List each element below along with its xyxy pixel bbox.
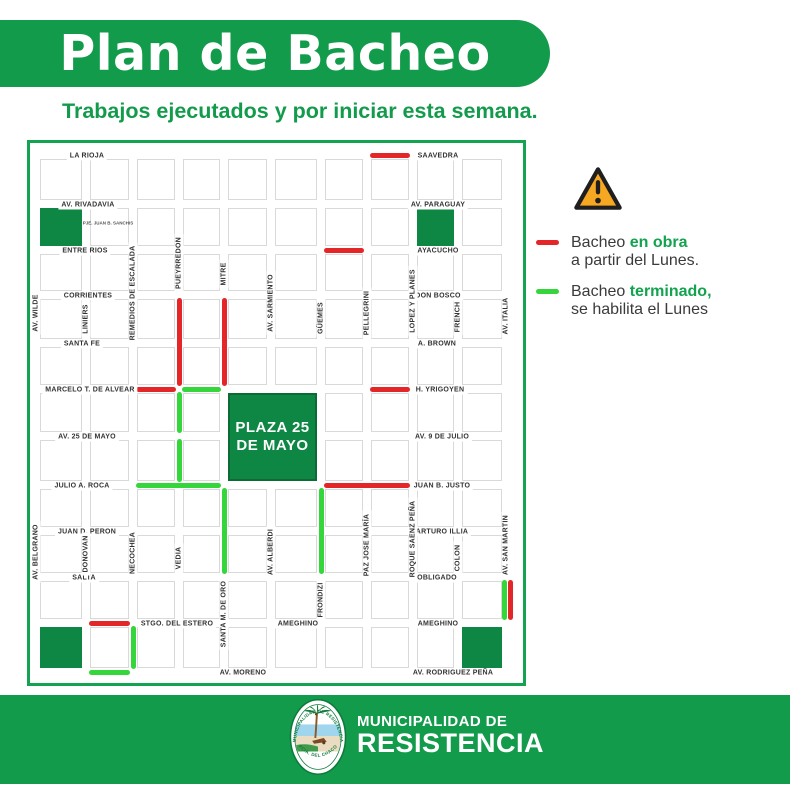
city-block — [462, 159, 502, 200]
bacheo-segment-green — [177, 439, 182, 482]
bacheo-segment-green — [131, 626, 136, 669]
city-block — [325, 347, 363, 385]
street-label-h: AMEGHINO — [275, 619, 322, 628]
street-label-h: AV. MORENO — [217, 668, 269, 677]
legend-line2: se habilita el Lunes — [571, 301, 708, 318]
city-block — [371, 535, 409, 573]
city-block — [228, 299, 267, 339]
city-block — [40, 393, 82, 432]
street-label-h: SAAVEDRA — [415, 151, 462, 160]
city-block — [40, 347, 82, 385]
city-block — [462, 581, 502, 619]
legend-item-terminado: Bacheo terminado, se habilita el Lunes — [536, 283, 712, 318]
infographic-page: Plan de Bacheo Trabajos ejecutados y por… — [0, 0, 790, 790]
city-block — [325, 627, 363, 668]
bacheo-segment-green — [177, 392, 182, 433]
street-label-v: NECOCHEA — [129, 529, 138, 577]
city-block — [462, 254, 502, 291]
city-block — [417, 535, 454, 573]
city-block — [137, 208, 175, 246]
city-block — [462, 393, 502, 432]
street-label-h: AMEGHINO — [415, 619, 462, 628]
street-label-h: AV. RIVADAVIA — [58, 200, 117, 209]
city-block — [40, 581, 82, 619]
street-label-v: SANTA M. DE ORO — [220, 578, 229, 650]
city-block — [462, 440, 502, 481]
city-block — [371, 208, 409, 246]
city-block — [40, 254, 82, 291]
city-block — [183, 489, 220, 527]
street-label-h: H. YRIGOYEN — [413, 385, 468, 394]
street-label-v: GÜEMES — [317, 299, 326, 337]
street-label-h: ENTRE RIOS — [59, 246, 110, 255]
city-block — [417, 393, 454, 432]
city-block — [228, 535, 267, 573]
street-label-h: STGO. DEL ESTERO — [138, 619, 216, 628]
legend-prefix: Bacheo — [571, 283, 630, 300]
legend-highlight: terminado, — [630, 283, 712, 300]
plaza-label: PLAZA 25 — [235, 419, 309, 437]
city-block — [228, 489, 267, 527]
bacheo-segment-red — [508, 580, 513, 620]
legend-text-en-obra: Bacheo en obra a partir del Lunes. — [571, 234, 699, 269]
city-block — [275, 489, 317, 527]
city-block — [137, 627, 175, 668]
bacheo-segment-green — [319, 488, 324, 574]
bacheo-segment-red — [222, 298, 227, 386]
city-block — [371, 440, 409, 481]
city-block — [90, 627, 129, 668]
city-block — [228, 254, 267, 291]
bacheo-segment-red — [89, 621, 130, 626]
city-block — [462, 535, 502, 573]
city-block — [90, 159, 129, 200]
city-block — [90, 581, 129, 619]
city-block — [275, 581, 317, 619]
warning-triangle-icon — [573, 166, 623, 211]
city-block — [137, 254, 175, 291]
street-label-v: AV. SAN MARTIN — [502, 512, 511, 578]
city-block — [40, 440, 82, 481]
city-block — [90, 254, 129, 291]
plaza-label: DE MAYO — [236, 437, 308, 455]
city-block — [228, 347, 267, 385]
legend-line2: a partir del Lunes. — [571, 252, 699, 269]
map-layer: PLAZA 25DE MAYOLA RIOJASAAVEDRAAV. RIVAD… — [30, 143, 517, 677]
city-block — [417, 581, 454, 619]
street-label-v: REMEDIOS DE ESCALADA — [129, 243, 138, 344]
bacheo-segment-green — [182, 387, 221, 392]
city-block — [325, 581, 363, 619]
city-block — [183, 440, 220, 481]
city-block — [137, 489, 175, 527]
bacheo-segment-red — [177, 298, 182, 386]
street-label-v: LINIERS — [82, 301, 91, 336]
street-label-v: MITRE — [220, 259, 229, 288]
city-block — [417, 299, 454, 339]
city-block — [462, 347, 502, 385]
city-block — [275, 627, 317, 668]
street-label-h: LA RIOJA — [67, 151, 107, 160]
city-block — [371, 581, 409, 619]
street-label-h: JUAN B. JUSTO — [411, 481, 473, 490]
street-label-v: AV. ITALIA — [502, 295, 511, 338]
city-block — [325, 440, 363, 481]
city-block — [228, 159, 267, 200]
street-label-h: OBLIGADO — [414, 573, 460, 582]
city-block — [275, 299, 317, 339]
street-label-h: AV. 9 DE JULIO — [412, 432, 472, 441]
city-block — [228, 208, 267, 246]
street-label-v: VEDIA — [175, 544, 184, 573]
municipality-seal: MUNICIPALIDAD DE RESISTENCIA PCIA. DEL C… — [289, 698, 347, 776]
city-block — [90, 440, 129, 481]
bacheo-segment-red — [136, 387, 176, 392]
street-map: PLAZA 25DE MAYOLA RIOJASAAVEDRAAV. RIVAD… — [27, 140, 526, 686]
city-block — [40, 159, 82, 200]
city-block — [90, 393, 129, 432]
city-block — [462, 208, 502, 246]
city-block — [275, 208, 317, 246]
city-block — [371, 627, 409, 668]
street-label-v: PELLEGRINI — [363, 288, 372, 339]
city-block — [183, 299, 220, 339]
city-block — [325, 254, 363, 291]
city-block — [462, 299, 502, 339]
city-block — [183, 208, 220, 246]
green-block — [462, 627, 502, 668]
city-block — [228, 627, 267, 668]
city-block — [183, 535, 220, 573]
city-block — [417, 254, 454, 291]
city-block — [137, 535, 175, 573]
city-block — [275, 254, 317, 291]
city-block — [417, 440, 454, 481]
city-block — [183, 627, 220, 668]
street-label-v: AV. BELGRANO — [32, 521, 41, 583]
legend-text-terminado: Bacheo terminado, se habilita el Lunes — [571, 283, 712, 318]
city-block — [371, 393, 409, 432]
city-block — [325, 393, 363, 432]
city-block — [417, 627, 454, 668]
street-label-v: PUEYRREDON — [175, 234, 184, 292]
city-block — [183, 393, 220, 432]
city-block — [40, 299, 82, 339]
city-block — [90, 489, 129, 527]
city-block — [40, 535, 82, 573]
city-block — [417, 347, 454, 385]
street-label-h: AYACUCHO — [414, 246, 461, 255]
legend-highlight: en obra — [630, 234, 688, 251]
city-block — [228, 581, 267, 619]
street-label-h: CORRIENTES — [61, 291, 115, 300]
street-label-h: A. BROWN — [415, 339, 459, 348]
city-block — [275, 347, 317, 385]
bacheo-segment-green — [222, 488, 227, 574]
org-name: MUNICIPALIDAD DE RESISTENCIA — [357, 714, 544, 757]
green-line-swatch — [536, 289, 559, 294]
city-block — [90, 299, 129, 339]
city-block — [325, 489, 363, 527]
city-block — [417, 159, 454, 200]
city-block — [417, 489, 454, 527]
street-label-h: SANTA FE — [61, 339, 103, 348]
city-block — [325, 299, 363, 339]
street-label-v: PAZ JOSE MARÍA — [363, 511, 372, 580]
street-label-h: AV. RODRIGUEZ PEÑA — [410, 668, 496, 677]
street-label-v: LOPEZ Y PLANES — [409, 266, 418, 336]
plaza-25-de-mayo: PLAZA 25DE MAYO — [228, 393, 317, 481]
red-line-swatch — [536, 240, 559, 245]
city-block — [183, 347, 220, 385]
street-label-h: MARCELO T. DE ALVEAR — [42, 385, 137, 394]
city-block — [137, 159, 175, 200]
city-block — [275, 159, 317, 200]
street-label-v: COLON — [454, 542, 463, 575]
city-block — [137, 299, 175, 339]
city-block — [137, 347, 175, 385]
page-subtitle: Trabajos ejecutados y por iniciar esta s… — [62, 99, 538, 124]
city-block — [371, 299, 409, 339]
green-block — [417, 208, 454, 246]
street-label-v: AV. ALBERDI — [267, 526, 276, 578]
city-block — [371, 254, 409, 291]
city-block — [137, 440, 175, 481]
bacheo-segment-green — [89, 670, 130, 675]
city-block — [183, 581, 220, 619]
street-label-v: DONOVAN — [82, 532, 91, 575]
header-banner: Plan de Bacheo — [0, 20, 550, 87]
bacheo-segment-green — [136, 483, 221, 488]
green-block — [40, 208, 82, 246]
footer-band: MUNICIPALIDAD DE RESISTENCIA PCIA. DEL C… — [0, 695, 790, 784]
city-block — [275, 535, 317, 573]
green-block — [40, 627, 82, 668]
city-block — [325, 159, 363, 200]
legend-prefix: Bacheo — [571, 234, 630, 251]
city-block — [90, 535, 129, 573]
city-block — [137, 581, 175, 619]
legend-item-en-obra: Bacheo en obra a partir del Lunes. — [536, 234, 699, 269]
street-label-h: AV. 25 DE MAYO — [55, 432, 119, 441]
street-label-v: AV. WILDE — [32, 291, 41, 334]
city-block — [325, 535, 363, 573]
org-name-line2: RESISTENCIA — [357, 729, 544, 757]
bacheo-segment-red — [324, 248, 364, 253]
city-block — [183, 254, 220, 291]
city-block — [90, 208, 129, 246]
city-block — [325, 208, 363, 246]
org-name-line1: MUNICIPALIDAD DE — [357, 714, 544, 729]
street-label-h: AV. PARAGUAY — [408, 200, 468, 209]
city-block — [137, 393, 175, 432]
city-block — [90, 347, 129, 385]
page-title: Plan de Bacheo — [59, 25, 490, 82]
street-label-v: FRONDIZI — [317, 579, 326, 620]
city-block — [462, 489, 502, 527]
passage-label: PJE. JUAN B. SANCHIS — [83, 221, 134, 226]
bacheo-segment-red — [370, 153, 410, 158]
city-block — [371, 347, 409, 385]
city-block — [371, 159, 409, 200]
street-label-h: JULIO A. ROCA — [51, 481, 112, 490]
bacheo-segment-green — [502, 580, 507, 620]
bacheo-segment-red — [324, 483, 410, 488]
city-block — [40, 489, 82, 527]
city-block — [183, 159, 220, 200]
street-label-v: AV. SARMIENTO — [267, 271, 276, 335]
street-label-v: FRENCH — [454, 299, 463, 336]
city-block — [371, 489, 409, 527]
street-label-h: ARTURO ILLIA — [413, 527, 471, 536]
bacheo-segment-red — [370, 387, 410, 392]
street-label-v: ROQUE SAENZ PEÑA — [409, 498, 418, 581]
